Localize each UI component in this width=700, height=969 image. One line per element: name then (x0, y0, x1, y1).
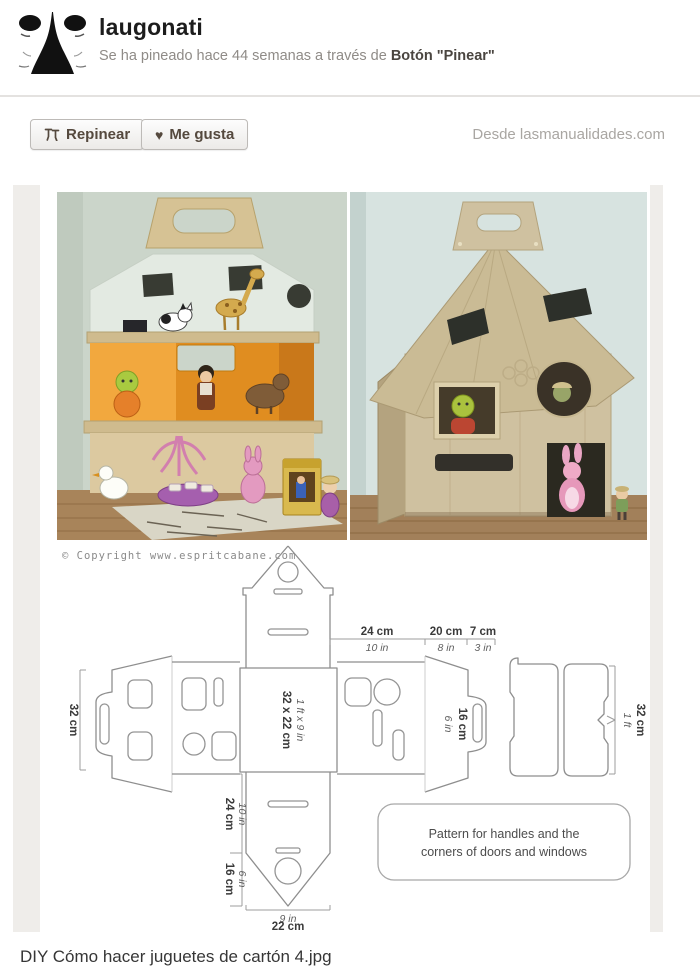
dim-top1-cm: 24 cm (361, 626, 394, 638)
heart-icon: ♥ (155, 127, 163, 143)
username[interactable]: laugonati (99, 14, 203, 41)
toy-person (197, 365, 215, 410)
dim-top2-in: 8 in (438, 642, 455, 654)
dim-roof-ft: 1 ft (621, 713, 633, 729)
dim-bottom-cm: 22 cm (272, 921, 305, 932)
pin-caption: DIY Cómo hacer juguetes de cartón 4.jpg (20, 947, 332, 967)
dim-roof-cm: 32 cm (634, 704, 646, 737)
dim-gable-cm: 16 cm (456, 708, 468, 741)
dim-lower2-in: 6 in (236, 871, 248, 888)
photo-closed-dollhouse (350, 192, 647, 540)
dim-top1-in: 10 in (366, 642, 389, 654)
dim-top3-cm: 7 cm (470, 626, 496, 638)
dim-center-cm: 32 x 22 cm (280, 691, 292, 749)
toy-girl (321, 476, 339, 517)
dim-gable-in: 6 in (442, 716, 454, 733)
dim-top2-cm: 20 cm (430, 626, 463, 638)
dim-lower2-cm: 16 cm (223, 863, 235, 896)
note-line2: corners of doors and windows (421, 845, 587, 859)
window-round (536, 361, 592, 417)
window-rect (434, 382, 500, 439)
pin-header: laugonati Se ha pineado hace 44 semanas … (0, 0, 700, 97)
pinned-text: Se ha pineado hace 44 semanas a través d… (99, 48, 391, 64)
pinned-status: Se ha pineado hace 44 semanas a través d… (99, 48, 495, 64)
pin-image[interactable]: © Copyright www.espritcabane.com 32 x 22… (13, 185, 663, 932)
dim-lower1-in: 10 in (236, 803, 248, 826)
repin-label: Repinear (66, 126, 130, 143)
toy-cabinet (283, 459, 321, 515)
repin-button[interactable]: Repinear (30, 119, 144, 150)
note-line1: Pattern for handles and the (429, 827, 580, 841)
note-box (378, 804, 630, 880)
dim-left-height: 32 cm (67, 704, 79, 737)
dim-top3-in: 3 in (475, 642, 492, 654)
door-opening (547, 443, 605, 517)
repin-icon (44, 128, 60, 141)
like-button[interactable]: ♥ Me gusta (141, 119, 248, 150)
avatar[interactable] (17, 8, 88, 80)
like-label: Me gusta (169, 126, 234, 143)
dim-lower1-cm: 24 cm (223, 798, 235, 831)
pattern-diagram: © Copyright www.espritcabane.com 32 x 22… (40, 542, 650, 932)
dim-center-in: 1 ft x 9 in (294, 699, 306, 742)
source-link[interactable]: Desde lasmanualidades.com (472, 126, 665, 143)
pin-page: laugonati Se ha pineado hace 44 semanas … (0, 0, 700, 969)
copyright-text: © Copyright www.espritcabane.com (62, 550, 296, 562)
window-slot (435, 454, 513, 471)
pin-image-canvas: © Copyright www.espritcabane.com 32 x 22… (40, 185, 650, 932)
pinned-via: Botón "Pinear" (391, 48, 495, 64)
photo-open-dollhouse (57, 192, 347, 540)
